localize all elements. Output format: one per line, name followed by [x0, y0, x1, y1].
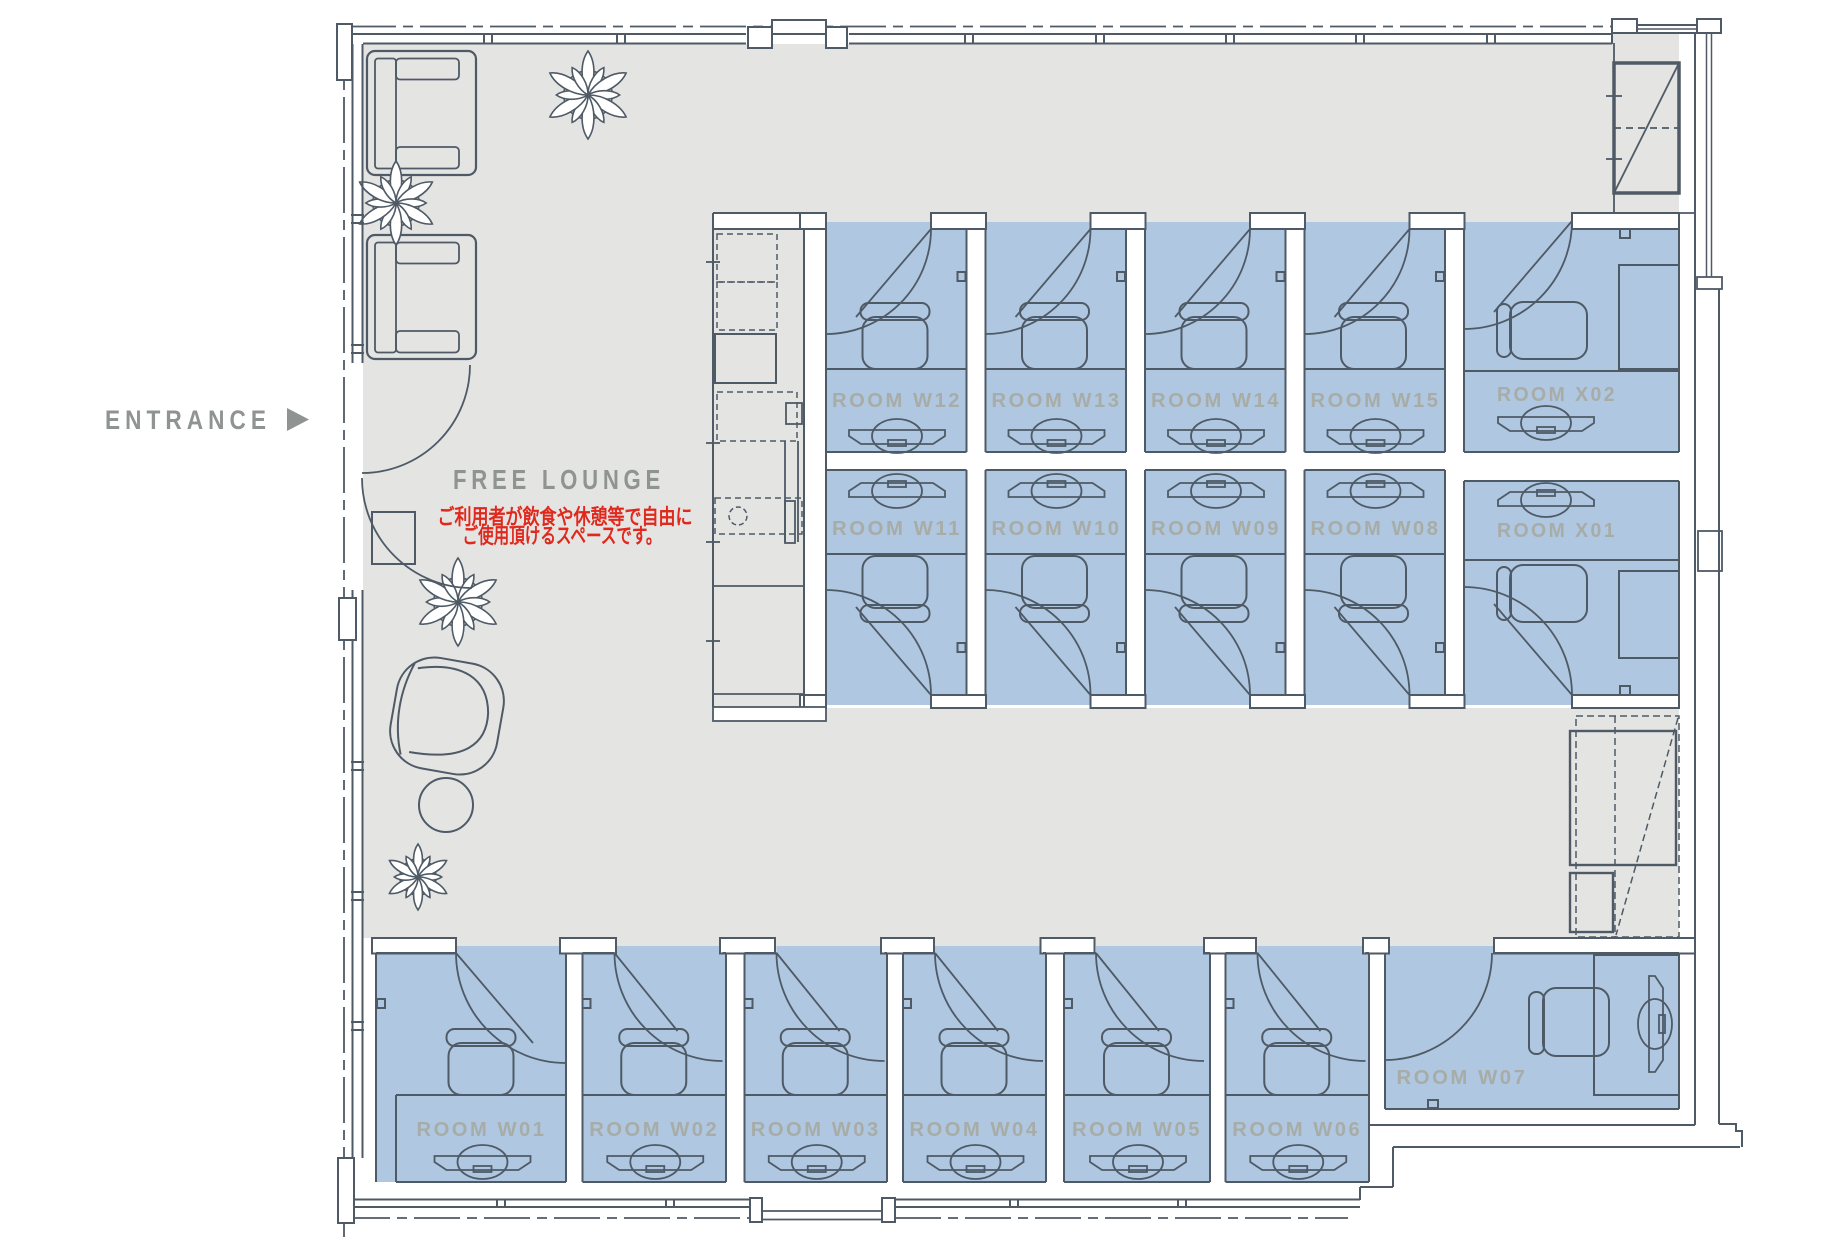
- svg-text:ROOM W04: ROOM W04: [910, 1119, 1040, 1141]
- svg-text:ROOM W07: ROOM W07: [1397, 1067, 1528, 1089]
- svg-text:ROOM W06: ROOM W06: [1232, 1119, 1362, 1141]
- svg-text:ROOM X01: ROOM X01: [1497, 520, 1617, 542]
- svg-text:FREE LOUNGE: FREE LOUNGE: [453, 464, 665, 495]
- svg-text:ROOM W09: ROOM W09: [1151, 518, 1281, 540]
- svg-text:ROOM W14: ROOM W14: [1151, 390, 1281, 412]
- svg-text:ROOM W02: ROOM W02: [589, 1119, 719, 1141]
- svg-text:ROOM W03: ROOM W03: [751, 1119, 881, 1141]
- svg-text:ROOM W11: ROOM W11: [832, 518, 962, 540]
- svg-text:ROOM W13: ROOM W13: [992, 390, 1122, 412]
- svg-text:ご使用頂けるスペースです。: ご使用頂けるスペースです。: [463, 524, 662, 548]
- svg-text:ROOM W15: ROOM W15: [1311, 390, 1441, 412]
- svg-text:ROOM W08: ROOM W08: [1311, 518, 1441, 540]
- svg-text:ROOM X02: ROOM X02: [1497, 384, 1617, 406]
- svg-text:ROOM W10: ROOM W10: [992, 518, 1122, 540]
- svg-text:ROOM W01: ROOM W01: [417, 1119, 547, 1141]
- svg-text:ROOM W12: ROOM W12: [832, 390, 962, 412]
- svg-text:ENTRANCE: ENTRANCE: [105, 405, 271, 435]
- svg-text:ROOM W05: ROOM W05: [1072, 1119, 1202, 1141]
